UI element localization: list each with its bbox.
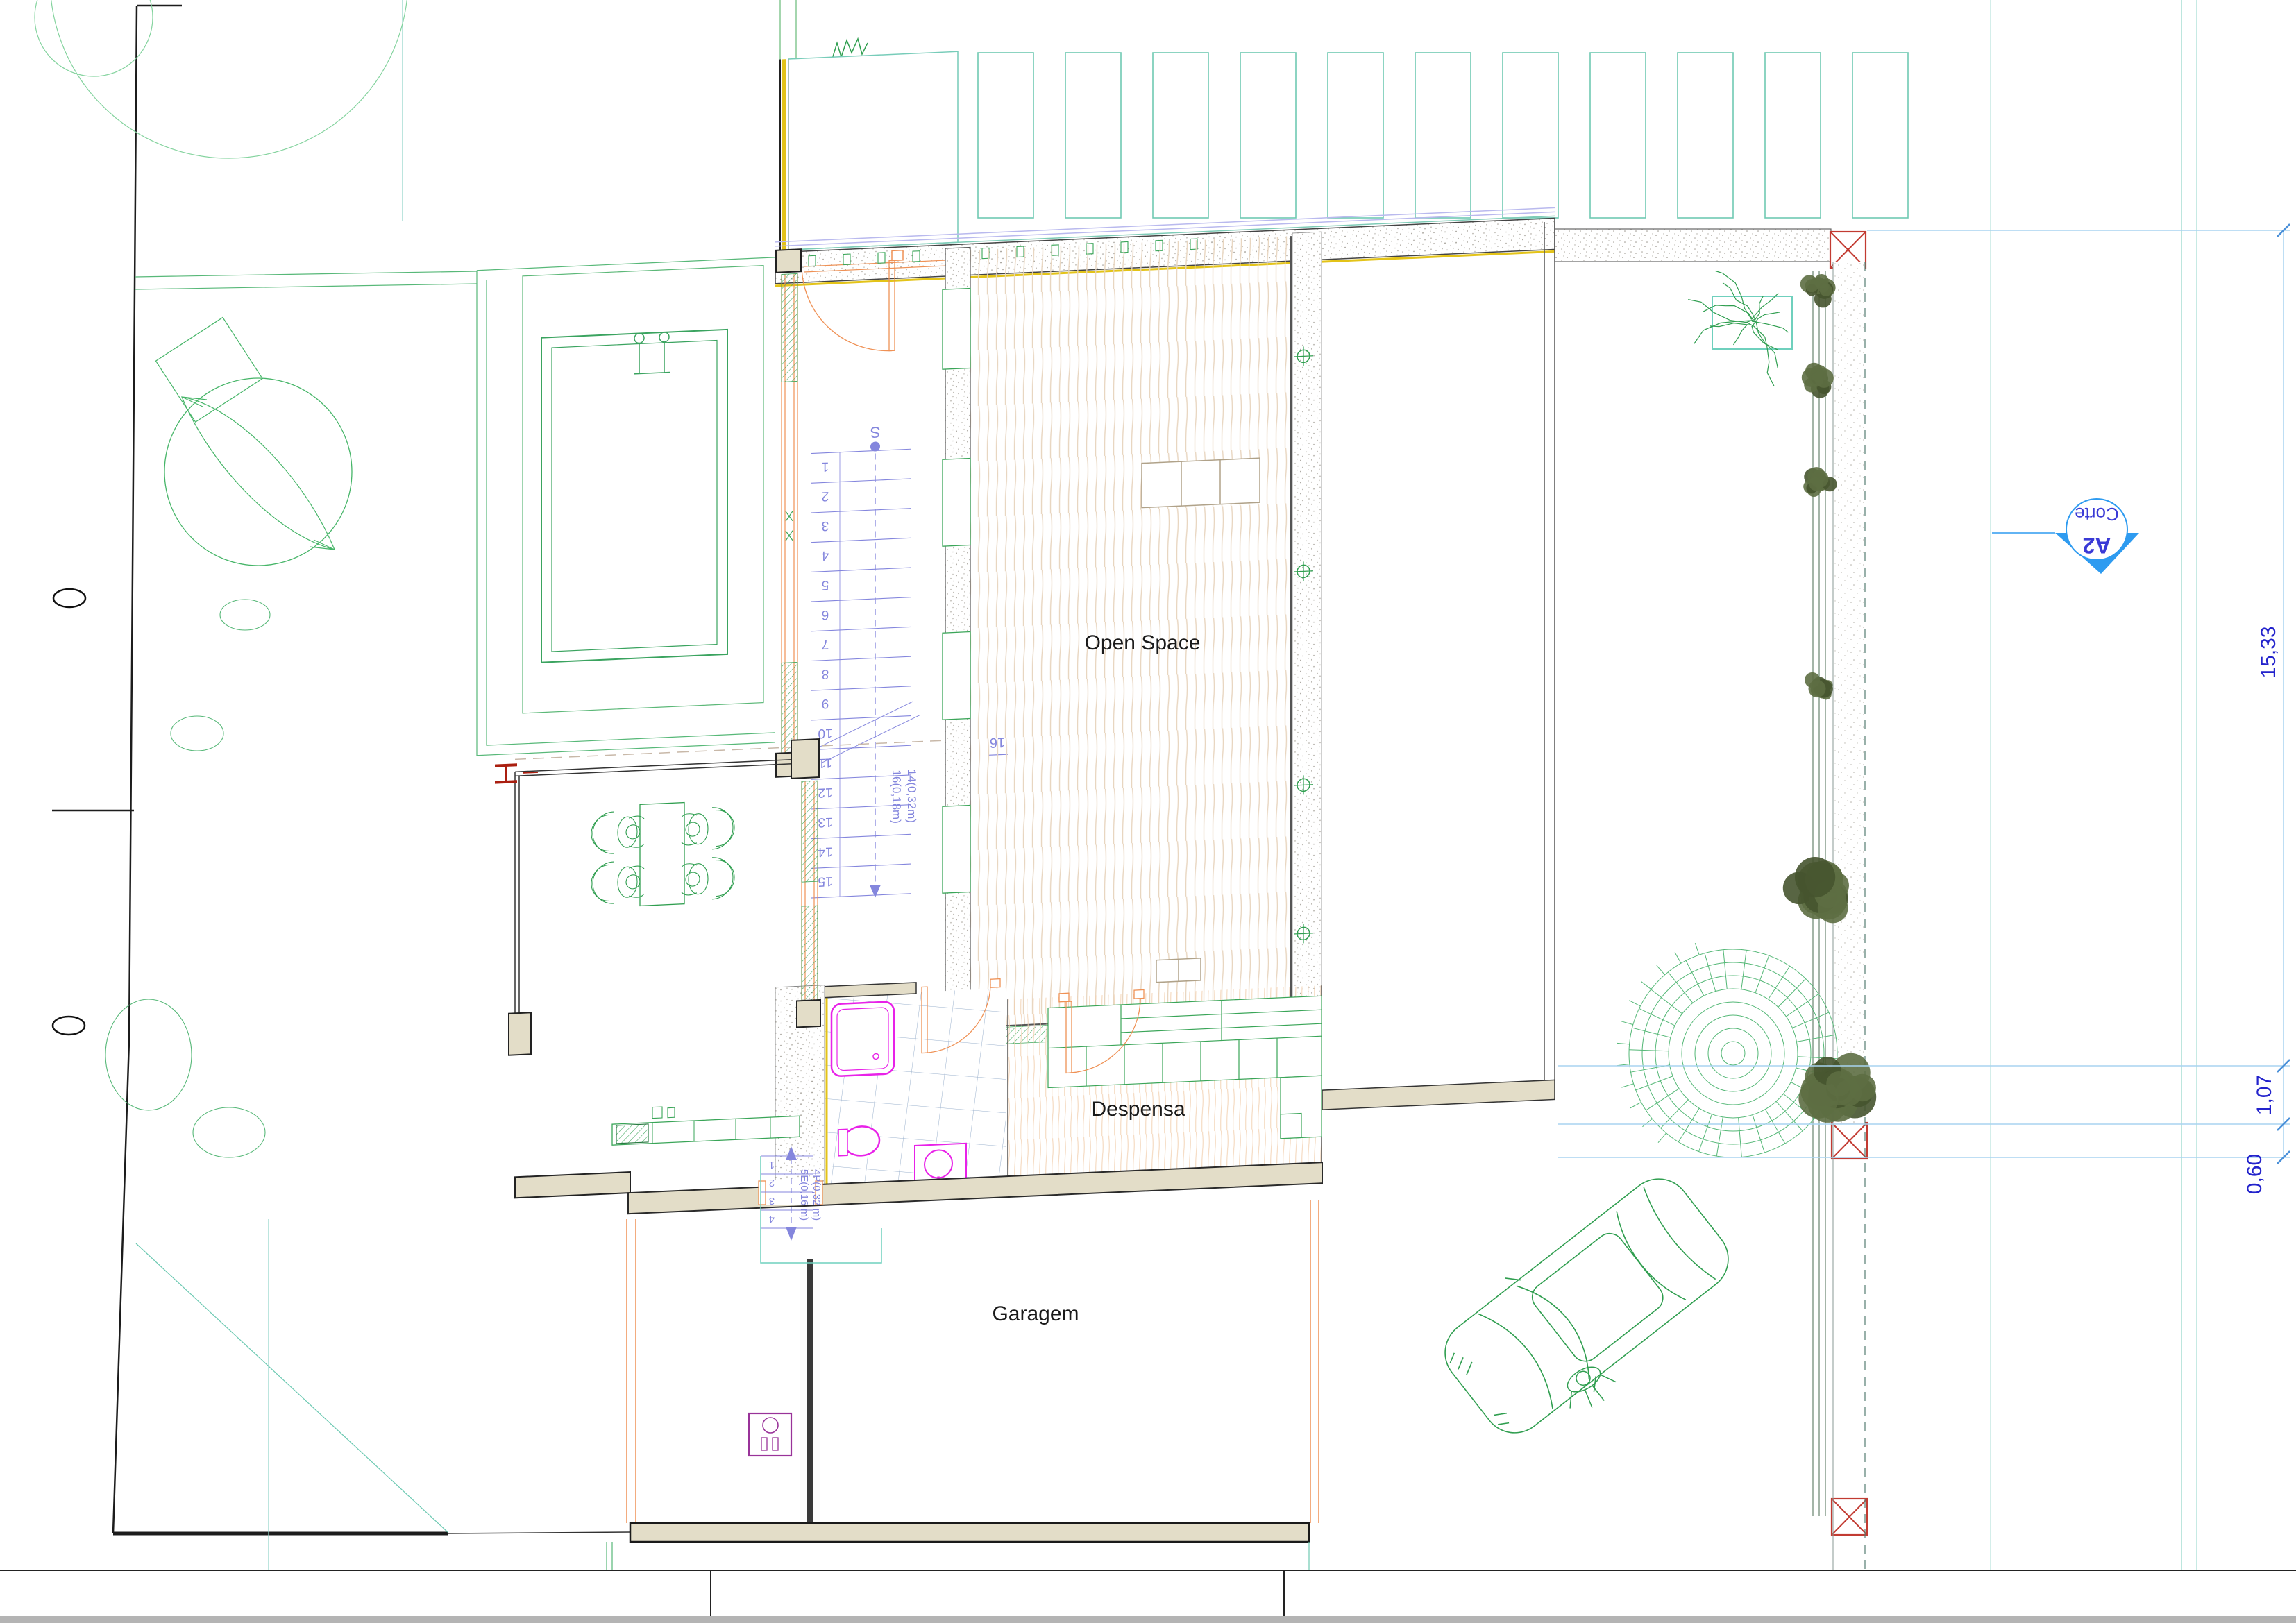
stair-tread [811,597,911,602]
stair-number: 8 [822,666,829,681]
paver-ring [1642,962,1824,1144]
tree-canopy-outline [35,0,153,76]
pool-garden [477,257,775,756]
paver-joint [1793,1012,1829,1028]
paver-joint [1668,972,1693,1003]
car-rear-window [1606,1212,1686,1309]
paver-joint [1741,950,1746,989]
stair-note: 16(0,18m) [890,770,903,824]
garage-west-wall [627,1219,636,1523]
stair-number: 4 [769,1213,775,1225]
stair-number: 13 [818,815,832,830]
toilet-tank [838,1129,847,1156]
despensa-label: Despensa [1091,1098,1185,1121]
branch-line [1723,283,1755,321]
stair-number: 1 [822,459,829,473]
chair [712,856,734,899]
tree-symbol-circle [164,378,352,566]
person-body [618,817,637,848]
dimensions: 15,33 1,07 0,60 [1558,224,2290,1194]
tree-canopy [1802,363,1834,398]
glazing-post [782,273,797,382]
dim-walk: 1,07 [2253,1075,2276,1115]
stair-tread [811,627,911,631]
south-east-wall [1322,1080,1555,1110]
person-arms [629,816,644,848]
person-head [626,824,640,839]
person-head [1573,1369,1592,1388]
stair-tread [811,449,911,453]
fence-slat [1678,53,1733,218]
fence-slat [1503,53,1558,218]
seated-people [591,806,734,904]
column-marker [1832,1499,1867,1535]
car-trunk-line [1637,1187,1716,1285]
branch-line [1734,325,1748,345]
stair-note: 4P(0,32 m) [811,1169,822,1221]
fence-slat [1328,53,1383,218]
manhole [53,1017,85,1035]
person-head [626,874,640,889]
steel-column-symbol [495,764,538,783]
east-terrace [1322,221,1555,1110]
door-jamb [759,1181,766,1205]
person-shoulders [1563,1362,1604,1397]
east-walkway [1617,262,1877,1570]
courtyard-patio [788,51,958,250]
seated-person [591,810,644,854]
paver-stub [1630,1102,1641,1107]
paver-stub [1657,965,1665,975]
paver-ring [1655,976,1811,1131]
paver-joint [1686,960,1704,996]
leaf-symbol [182,397,335,550]
cad-canvas: 15,33 1,07 0,60 Corte A2 [0,0,2296,1623]
main-staircase: 123456789101112131415S16(0,18m)14(0,32m) [811,422,920,901]
stair-arrow [870,885,881,898]
side-table [1156,958,1201,983]
stair-tread [811,479,911,483]
pool-outer [541,330,727,663]
tree-canopy [1803,467,1837,497]
garden-boundary [477,257,775,756]
stair-tread [811,656,911,661]
shrub [171,716,223,751]
stair-tread [811,716,911,720]
wall-post [791,739,819,779]
paver-stub [1695,943,1699,955]
pool-ladder [634,332,670,374]
paver-stub [1675,953,1681,964]
boundary-left-line [113,6,137,1533]
paver-joint [1753,1115,1764,1153]
paver-ring [1629,949,1837,1157]
branch-line [1754,296,1763,322]
dim-overall: 15,33 [2257,626,2280,678]
stair-tread [811,568,911,572]
paver-ring [1708,1028,1758,1078]
garage-partition-wall [807,1259,813,1523]
paver-joint [1797,1035,1836,1042]
paver-joint [1755,955,1769,993]
paver-stub [1621,1021,1633,1025]
dining-table [640,803,684,906]
fence-slat [1153,53,1208,218]
person-head [686,822,700,837]
person-arms [629,866,644,898]
branch-line [1688,300,1755,323]
stair-number: 9 [822,696,829,711]
stair-number: 11 [818,755,832,770]
vent-square [809,255,816,266]
dining-west-wall [515,772,519,1013]
circular-paving [1617,943,1837,1157]
stair-tread [811,864,911,868]
paver-joint [1678,1108,1699,1142]
shrub [105,999,192,1110]
entry-courtyard [780,51,958,250]
fence-slat [1765,53,1821,218]
stair-number: 14 [818,844,833,859]
slat-fence [978,53,1908,218]
stair-number: 2 [769,1177,775,1189]
shower-tray [832,1001,894,1076]
despensa-room [1008,982,1322,1187]
car-windshield [1517,1274,1605,1379]
paver-joint [1705,953,1716,992]
stair-tread [811,538,911,542]
paver-ring [1695,1015,1771,1091]
section-title: Corte [2075,504,2119,525]
garage-east-wall [1310,1200,1319,1523]
person-body [618,867,637,898]
manhole [53,589,85,607]
shrub [193,1107,265,1157]
stair-tread [811,894,911,898]
person-arms [682,813,697,845]
fence-slat [1240,53,1296,218]
stair-arrow-down [786,1227,797,1241]
stair-number: 6 [822,607,829,622]
paver-ring [1682,1002,1784,1105]
door-jamb [892,250,903,261]
wall-post [509,1012,531,1055]
branch-line [1703,305,1753,319]
paver-joint [1699,1114,1712,1152]
column-marker [1832,1123,1867,1159]
dining-north-wall [515,759,800,776]
pool-inner [552,341,717,652]
branch-line [1746,322,1778,368]
paver-stub [1629,1001,1640,1006]
seated-person [591,860,644,904]
paver-stub [1617,1043,1630,1044]
dim-curb: 0,60 [2243,1154,2266,1194]
stair-start-label: S [870,423,881,441]
kitchen-sink [616,1124,648,1144]
paver-ring [1669,989,1798,1118]
tree-canopy [1805,672,1833,700]
paver-stub [1658,1133,1666,1143]
paver-joint [1639,1008,1675,1026]
paver-joint [1651,989,1682,1014]
stair-tread [811,509,911,513]
stair-number: 1 [769,1159,775,1171]
stair-number: 12 [818,785,832,800]
paver-stub [1642,1119,1652,1126]
chair [591,812,614,854]
section-marker: Corte A2 [1992,499,2139,574]
boundary-bottom-thin [448,1532,630,1533]
person-body [689,863,708,894]
open-space-label: Open Space [1085,631,1201,654]
courtyard-wall-yellow [782,59,786,250]
seated-person [682,806,734,850]
tree-canopy [1800,274,1836,307]
person-head [686,872,700,887]
paver-joint [1765,1110,1784,1144]
paver-joint [1636,1076,1673,1090]
person-figure [1556,1358,1621,1418]
fence-slat [1852,53,1908,218]
fence-slat [978,53,1033,218]
person-body [689,813,708,844]
east-perimeter-wall [1544,221,1555,1085]
boundary-wall-band [1555,229,1831,262]
dining-south-wall [515,1172,630,1198]
paver-stub [1621,1084,1633,1087]
west-glazing-wall [776,249,801,777]
stair-number: 4 [821,548,829,563]
vent-square [878,253,885,263]
overhang-dashed [515,740,944,759]
sideboard [1142,458,1260,507]
vent-square [843,254,850,264]
stair-number: 2 [822,488,829,503]
car-block [1426,1159,1747,1454]
glazing-x-marks [786,511,793,541]
wall-post [776,249,801,273]
paver-joint [1739,1118,1742,1157]
vent-square [913,251,920,262]
stair-number: 15 [818,874,832,889]
terrain-diagonal [136,1243,448,1532]
paver-joint [1786,994,1818,1017]
paver-stub [1641,982,1651,989]
branch-line [1694,321,1754,344]
paver-joint [1629,1050,1669,1051]
stair-note: 14(0,32m) [905,769,918,823]
garden-edge-lines [135,271,477,289]
tree-canopy-outline [50,0,408,158]
chair [591,862,614,904]
garage-south-wall [630,1523,1309,1542]
sheet-edge-band [0,1616,2296,1623]
paver-ring [1721,1042,1745,1065]
car-roof [1527,1228,1669,1367]
stair-number: 3 [822,518,829,533]
stair-note: 5E(0,16 m) [798,1169,810,1221]
toilet [843,1125,879,1156]
car-body [1433,1166,1741,1446]
person-arms [682,863,697,895]
stair-tread [811,834,911,838]
water-heater [749,1413,791,1456]
paver-joint [1632,1028,1671,1037]
section-id: A2 [2083,533,2111,558]
building: 123456789101112131415S16(0,18m)14(0,32m)… [477,25,1555,1220]
fence-slat [1065,53,1121,218]
paver-joint [1723,950,1727,989]
seated-person [682,856,734,900]
car-hood-line [1478,1304,1566,1409]
stair-number: 10 [818,726,832,741]
car-headlight-hatch [1446,1348,1515,1429]
floor-plan-sheet: 15,33 1,07 0,60 Corte A2 [0,0,2296,1623]
branch-tree-symbol [1688,271,1788,386]
stair-start-dot [870,441,880,452]
fence-slat [1590,53,1646,218]
stair-number: 3 [769,1195,775,1207]
kitchen-counter [612,1101,800,1145]
fence-slat [1415,53,1471,218]
stair-tread [811,686,911,690]
paver-joint [1716,1117,1723,1156]
east-wall [1292,232,1322,1042]
shrub [220,600,270,630]
walkway-paving [1833,262,1865,1123]
stair-number: 5 [822,577,829,592]
garden-stub [607,1542,612,1570]
garagem-label: Garagem [992,1302,1079,1325]
chair [712,806,734,849]
stair-number: 7 [822,637,829,652]
